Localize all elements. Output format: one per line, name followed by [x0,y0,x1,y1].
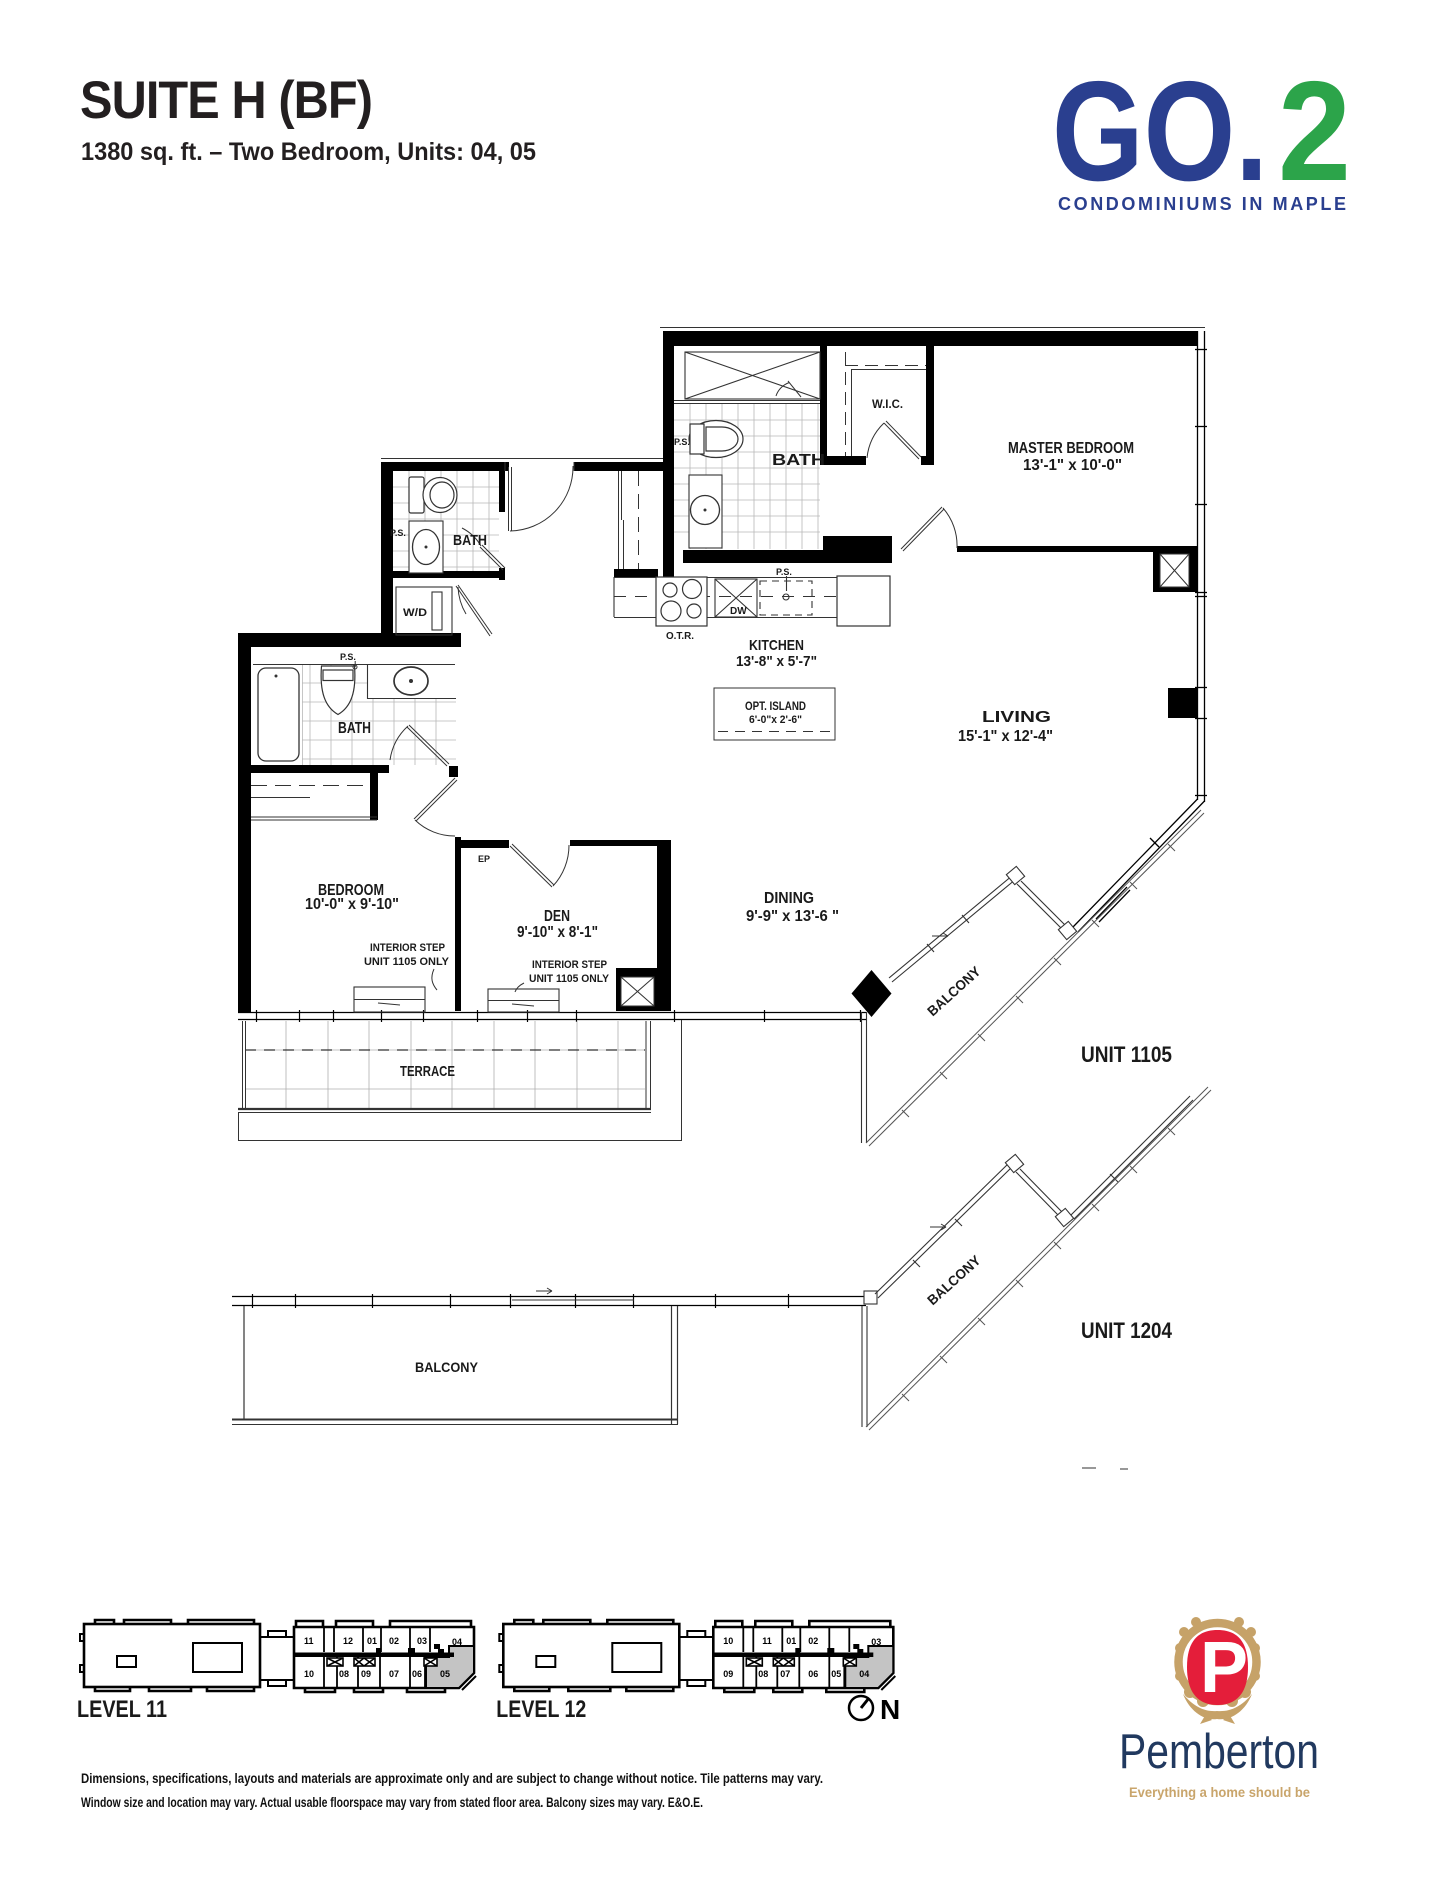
svg-text:11: 11 [762,1636,772,1646]
svg-text:SUITE H (BF): SUITE H (BF) [80,71,372,130]
svg-text:6'-0"x 2'-6": 6'-0"x 2'-6" [749,714,802,726]
svg-text:2: 2 [1278,52,1351,211]
svg-text:LEVEL 11: LEVEL 11 [77,1696,167,1723]
svg-text:06: 06 [412,1669,422,1679]
svg-text:P: P [1200,1628,1248,1708]
svg-text:06: 06 [808,1669,818,1679]
svg-text:BATH: BATH [772,452,825,469]
svg-text:TERRACE: TERRACE [400,1063,455,1080]
svg-text:09: 09 [361,1669,371,1679]
svg-text:P.S.: P.S. [340,652,356,662]
svg-text:15'-1" x 12'-4": 15'-1" x 12'-4" [958,728,1053,745]
svg-text:GO.: GO. [1052,52,1268,211]
svg-text:INTERIOR STEP: INTERIOR STEP [532,959,607,971]
svg-text:BATH: BATH [338,720,371,737]
svg-text:08: 08 [339,1669,349,1679]
svg-text:CONDOMINIUMS IN MAPLE: CONDOMINIUMS IN MAPLE [1058,194,1346,214]
svg-text:02: 02 [808,1636,818,1646]
svg-text:LEVEL 12: LEVEL 12 [496,1696,586,1723]
svg-text:BATH: BATH [453,532,487,549]
svg-text:10'-0" x 9'-10": 10'-0" x 9'-10" [305,896,399,913]
svg-text:09: 09 [723,1669,733,1679]
svg-text:13'-8" x 5'-7": 13'-8" x 5'-7" [736,653,817,670]
svg-text:Pemberton: Pemberton [1119,1725,1319,1779]
svg-text:12: 12 [343,1636,353,1646]
svg-text:Dimensions, specifications, la: Dimensions, specifications, layouts and … [81,1771,823,1786]
svg-text:01: 01 [367,1636,377,1646]
svg-text:P.S.: P.S. [390,528,406,538]
svg-text:1380 sq. ft. – Two Bedroom, Un: 1380 sq. ft. – Two Bedroom, Units: 04, 0… [81,138,536,166]
svg-text:05: 05 [831,1669,841,1679]
svg-text:DW: DW [730,606,747,617]
svg-text:BALCONY: BALCONY [415,1359,479,1375]
svg-text:07: 07 [389,1669,399,1679]
svg-text:EP: EP [478,854,490,864]
svg-text:08: 08 [758,1669,768,1679]
svg-text:OPT. ISLAND: OPT. ISLAND [745,699,806,713]
svg-text:DINING: DINING [764,890,814,907]
svg-text:04: 04 [859,1669,869,1679]
svg-text:13'-1" x 10'-0": 13'-1" x 10'-0" [1023,457,1122,474]
svg-text:Everything a home should be: Everything a home should be [1129,1784,1310,1800]
svg-text:03: 03 [417,1636,427,1646]
svg-text:UNIT 1105 ONLY: UNIT 1105 ONLY [364,956,450,968]
svg-text:03: 03 [871,1637,881,1647]
svg-text:UNIT 1204: UNIT 1204 [1081,1318,1173,1343]
svg-text:11: 11 [304,1636,314,1646]
svg-text:P.S.: P.S. [776,567,792,577]
svg-text:W/D: W/D [403,607,427,619]
svg-text:UNIT 1105 ONLY: UNIT 1105 ONLY [529,973,610,985]
svg-text:INTERIOR STEP: INTERIOR STEP [370,942,445,954]
svg-text:07: 07 [780,1669,790,1679]
svg-text:MASTER BEDROOM: MASTER BEDROOM [1008,440,1134,457]
svg-text:01: 01 [786,1636,796,1646]
svg-text:BALCONY: BALCONY [924,1252,984,1308]
svg-text:KITCHEN: KITCHEN [749,637,804,654]
svg-text:10: 10 [723,1636,733,1646]
svg-text:LIVING: LIVING [982,709,1051,726]
svg-text:10: 10 [304,1669,314,1679]
svg-text:9'-9" x 13'-6 ": 9'-9" x 13'-6 " [746,908,839,925]
svg-text:04: 04 [452,1637,462,1647]
svg-text:BALCONY: BALCONY [924,963,984,1019]
svg-text:02: 02 [389,1636,399,1646]
svg-text:Window size and location may v: Window size and location may vary. Actua… [81,1795,703,1810]
svg-text:P.S.: P.S. [674,437,690,447]
svg-text:DEN: DEN [544,908,570,925]
svg-text:UNIT 1105: UNIT 1105 [1081,1042,1172,1067]
svg-text:O.T.R.: O.T.R. [666,631,694,642]
svg-text:W.I.C.: W.I.C. [872,397,903,411]
svg-text:N: N [880,1694,900,1725]
svg-text:05: 05 [440,1669,450,1679]
svg-text:9'-10" x 8'-1": 9'-10" x 8'-1" [517,924,598,941]
